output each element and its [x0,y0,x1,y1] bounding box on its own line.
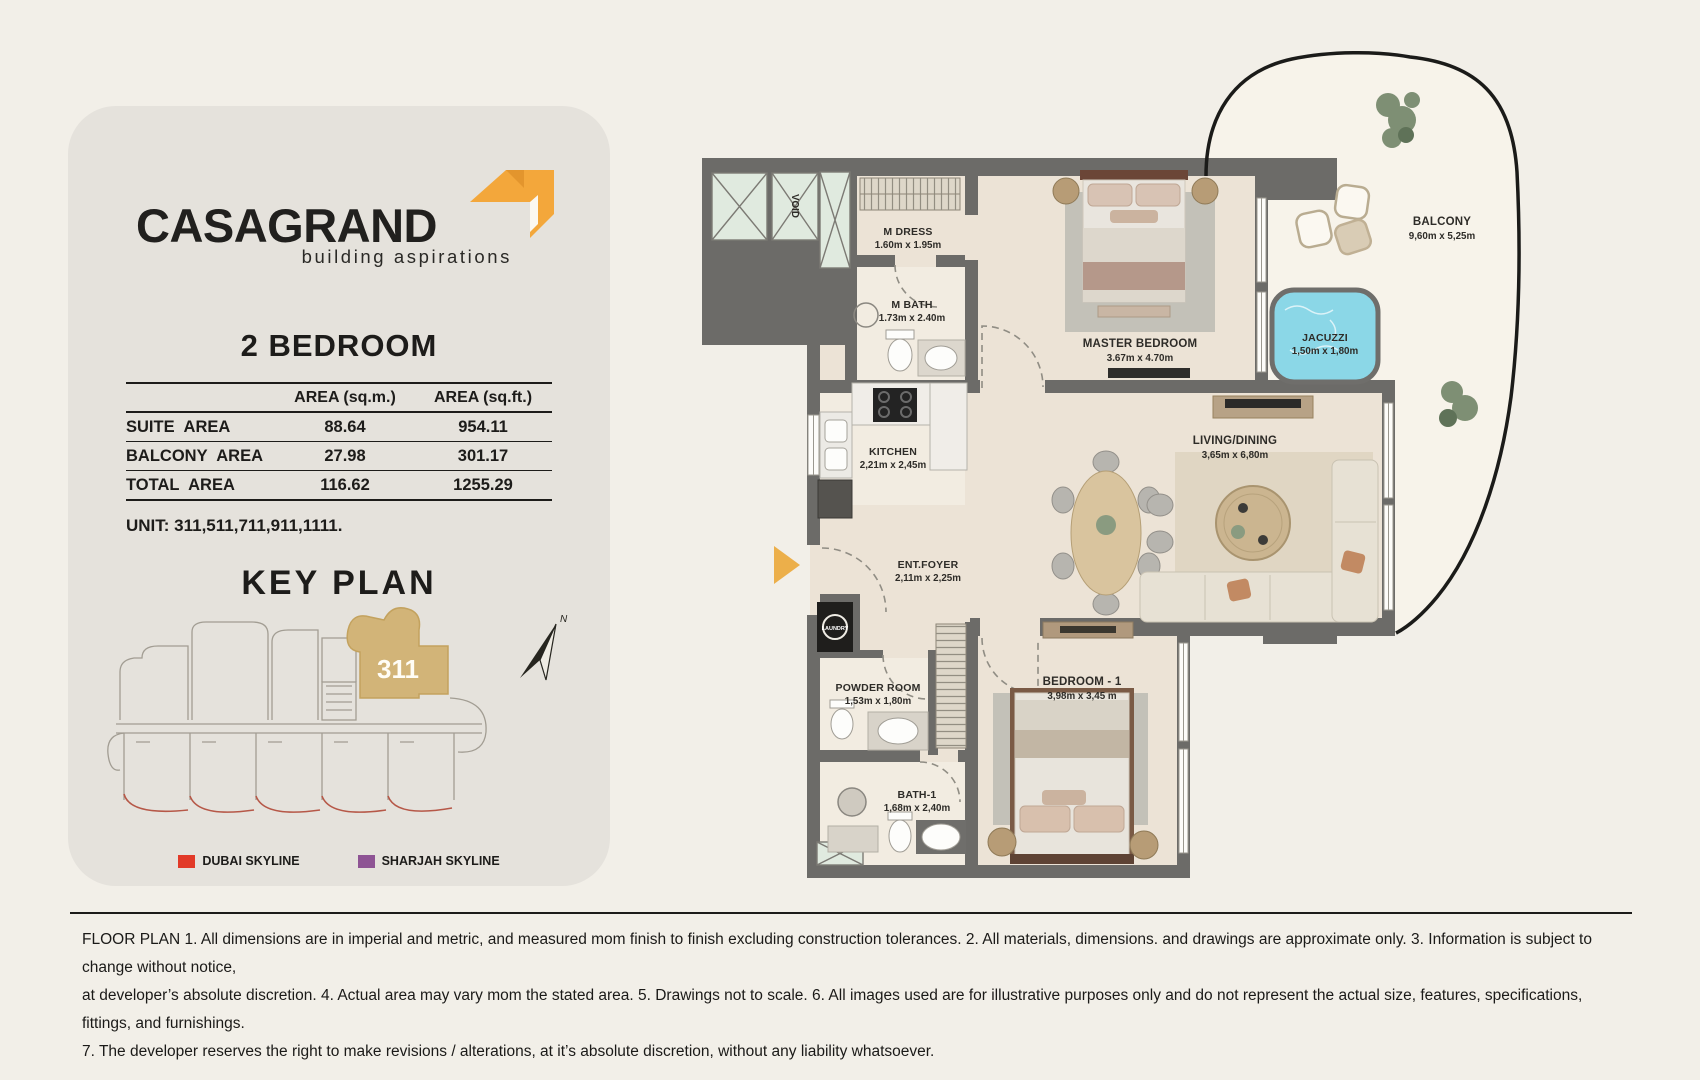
laundry-label: LAUNDRY [822,626,849,632]
row-sqm: 27.98 [276,442,414,471]
north-arrow-icon: N [520,614,568,680]
floor-plan: VOID [640,40,1560,920]
row-sqft: 301.17 [414,442,552,471]
key-plan-legend: DUBAI SKYLINE SHARJAH SKYLINE [68,854,610,868]
disclaimer-line: at developer’s absolute discretion. 4. A… [82,982,1627,1038]
page-background: { "card": { "logo": { "brand": "CASAGRAN… [0,0,1700,1080]
plan-type-heading: 2 BEDROOM [68,328,610,364]
row-label: TOTAL AREA [126,471,276,501]
room-dims-balcony: 9,60m x 5,25m [1409,231,1476,242]
room-label-living: LIVING/DINING [1193,435,1277,447]
area-table: AREA (sq.m.) AREA (sq.ft.) SUITE AREA 88… [126,382,552,501]
table-row: BALCONY AREA 27.98 301.17 [126,442,552,471]
room-label-mdress: M DRESS [883,226,932,238]
north-label: N [560,614,568,625]
disclaimer-line: FLOOR PLAN 1. All dimensions are in impe… [82,926,1627,982]
legend-dubai-label: DUBAI SKYLINE [202,854,299,868]
room-label-master: MASTER BEDROOM [1083,338,1198,350]
room-dims-kitchen: 2,21m x 2,45m [860,460,927,471]
room-dims-living: 3,65m x 6,80m [1202,450,1269,461]
brand-logo: CASAGRAND [136,198,437,253]
col-header-sqm: AREA (sq.m.) [276,383,414,412]
master-nightstand [1192,178,1218,204]
sharjah-swatch-icon [358,855,375,868]
master-tv-console [1108,368,1190,378]
table-row: SUITE AREA 88.64 954.11 [126,412,552,442]
area-table-corner [126,383,276,412]
tv-console [1213,396,1313,418]
brochure-card: CASAGRAND building aspirations 2 BEDROOM… [68,106,610,886]
footer-divider [70,912,1632,914]
bedroom1-nightstand [988,828,1016,856]
master-bed [1080,170,1188,317]
room-dims-master: 3.67m x 4.70m [1107,353,1174,364]
brand-tagline: building aspirations [68,246,512,268]
room-dims-bedroom1: 3,98m x 3,45 m [1047,691,1116,702]
row-sqft: 954.11 [414,412,552,442]
room-label-foyer: ENT.FOYER [898,559,959,571]
armchair [1147,494,1173,516]
dubai-swatch-icon [178,855,195,868]
room-label-bath1: BATH-1 [898,789,937,801]
void-label: VOID [789,194,800,218]
row-sqm: 116.62 [276,471,414,501]
key-plan-map: 311 N [90,602,588,852]
room-dims-mdress: 1.60m x 1.95m [875,240,942,251]
col-header-sqft: AREA (sq.ft.) [414,383,552,412]
coffee-table [1216,486,1290,560]
table-row: TOTAL AREA 116.62 1255.29 [126,471,552,501]
room-label-kitchen: KITCHEN [869,446,917,458]
row-sqm: 88.64 [276,412,414,442]
room-dims-foyer: 2,11m x 2,25m [895,573,961,584]
legend-sharjah-label: SHARJAH SKYLINE [382,854,500,868]
row-label: SUITE AREA [126,412,276,442]
room-dims-powder: 1,53m x 1,80m [845,696,912,707]
room-label-balcony: BALCONY [1413,216,1471,228]
room-dims-jacuzzi: 1,50m x 1,80m [1292,346,1359,357]
row-label: BALCONY AREA [126,442,276,471]
room-label-jacuzzi: JACUZZI [1302,332,1348,344]
room-dims-mbath: 1.73m x 2.40m [879,313,946,324]
room-label-powder: POWDER ROOM [835,682,920,694]
entry-arrow-icon [774,546,800,584]
bedroom1-nightstand [1130,831,1158,859]
master-nightstand [1053,178,1079,204]
highlighted-unit-311: 311 [347,608,448,698]
unit-311-label: 311 [377,654,419,684]
row-sqft: 1255.29 [414,471,552,501]
key-plan-title: KEY PLAN [68,564,610,603]
armchair [1147,531,1173,553]
dubai-facing-curves [124,794,452,812]
unit-numbers: UNIT: 311,511,711,911,1111. [126,516,342,536]
disclaimer: FLOOR PLAN 1. All dimensions are in impe… [82,926,1627,1066]
bedroom1-bed [1010,688,1134,864]
room-dims-bath1: 1,68m x 2,40m [884,803,951,814]
room-label-bedroom1: BEDROOM - 1 [1043,676,1122,688]
disclaimer-line: 7. The developer reserves the right to m… [82,1038,1627,1066]
legend-dubai: DUBAI SKYLINE [178,854,299,868]
room-label-mbath: M BATH [891,299,932,311]
logo-mark-icon [466,162,560,254]
legend-sharjah: SHARJAH SKYLINE [358,854,500,868]
